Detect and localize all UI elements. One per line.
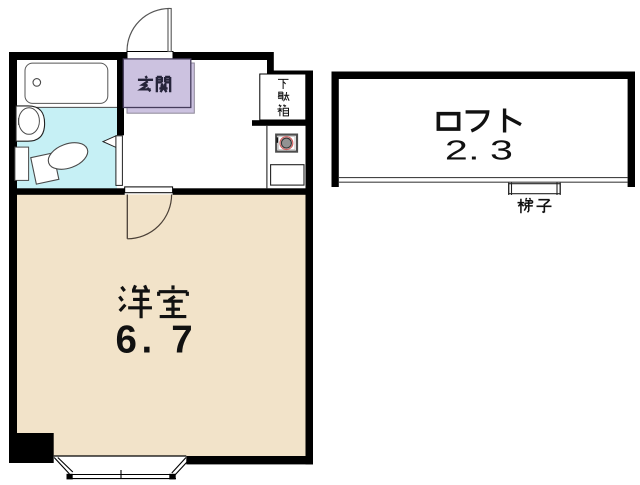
svg-text:.: . — [468, 135, 479, 166]
svg-text:3: 3 — [490, 135, 513, 166]
svg-text:7: 7 — [171, 319, 192, 362]
svg-text:.: . — [142, 319, 153, 362]
svg-text:2: 2 — [445, 135, 468, 166]
svg-text:6: 6 — [115, 319, 136, 362]
